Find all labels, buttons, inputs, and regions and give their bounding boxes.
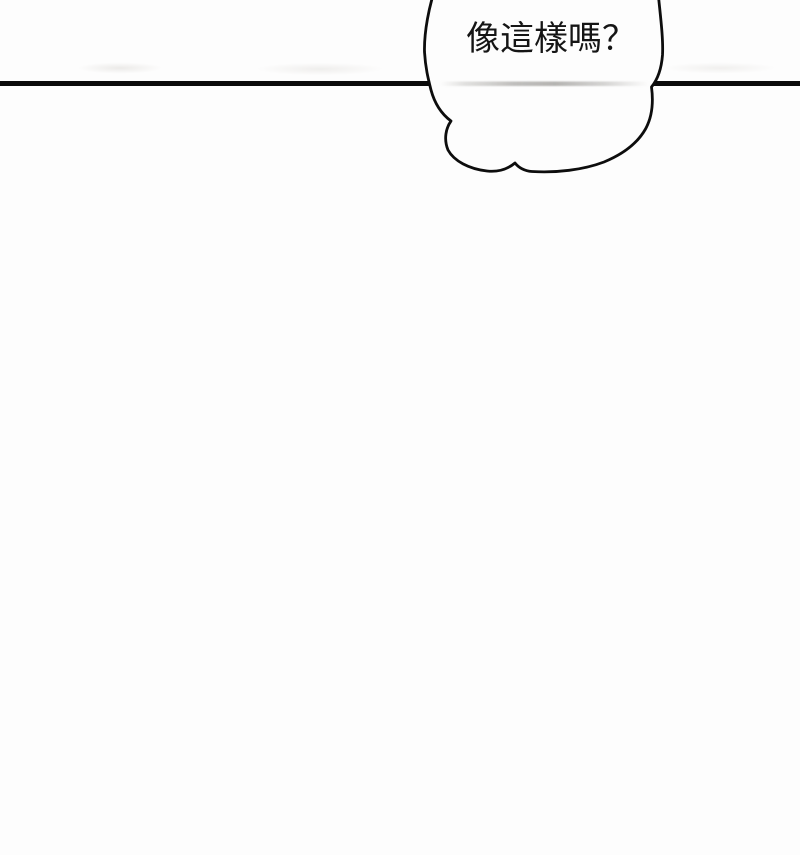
comic-panel: 像這樣嗎？ (0, 0, 800, 855)
speech-bubble (0, 0, 800, 210)
faded-panel-line-residue (440, 82, 650, 87)
speech-bubble-text: 像這樣嗎？ (441, 17, 661, 61)
